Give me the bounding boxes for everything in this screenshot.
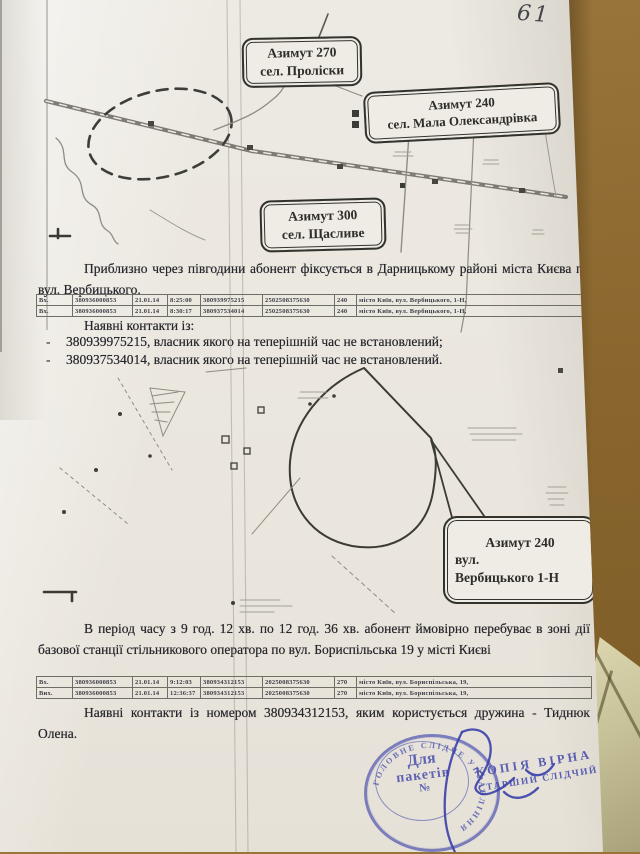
- cell: 270: [335, 677, 357, 688]
- contact-item: -380937534014, власник якого на теперішн…: [46, 352, 586, 368]
- cell: 380939975215: [201, 295, 263, 306]
- pointer-lines: [431, 440, 489, 523]
- cell: 380937534014: [201, 306, 263, 317]
- cell: 2502508375630: [263, 306, 335, 317]
- handwritten-page-number: 61: [516, 1, 552, 28]
- cell: 2502508375630: [263, 295, 335, 306]
- document-page: 61 Азимут 270 сел. Проліски Азимут 240 с…: [0, 0, 604, 852]
- photo-of-document: { "photo": { "page_number": "61" }, "map…: [0, 0, 640, 852]
- cell: 380936000853: [73, 688, 133, 699]
- callout-line: сел. Проліски: [244, 61, 360, 81]
- cell: 12:36:37: [168, 688, 201, 699]
- cell: 21.01.14: [133, 295, 168, 306]
- map-dots: [62, 394, 336, 605]
- contacts-intro: Наявні контакти із:: [84, 318, 194, 334]
- cell: 8:30:17: [168, 306, 201, 317]
- handwritten-signature: [358, 726, 598, 852]
- corner-bracket: [44, 592, 76, 601]
- page-edge-shadow: [0, 0, 2, 352]
- river-line: [56, 138, 118, 244]
- callout-line: сел. Щасливе: [262, 223, 384, 244]
- bullet-dash: -: [46, 352, 66, 368]
- coverage-ellipse: [79, 75, 241, 194]
- cell: 21.01.14: [133, 306, 168, 317]
- table-row: Вх. 380936000853 21.01.14 8:30:17 380937…: [37, 306, 592, 317]
- cell: 2025008375630: [263, 677, 335, 688]
- page-left-highlight: [0, 0, 46, 420]
- callout-line: Вербицького 1-Н: [455, 569, 585, 587]
- cell: 8:25:00: [168, 295, 201, 306]
- callout-azimuth-300: Азимут 300 сел. Щасливе: [259, 197, 386, 252]
- callout-azimuth-240-oleksandrivka: Азимут 240 сел. Мала Олександрівка: [363, 82, 561, 144]
- bullet-dash: -: [46, 334, 66, 350]
- cell: Вх.: [37, 677, 73, 688]
- cell: 240: [335, 295, 357, 306]
- cell: 270: [335, 688, 357, 699]
- call-log-table-boryspilska: Вх. 380936000853 21.01.14 9:12:03 380934…: [36, 676, 592, 699]
- call-log-table-verbytskoho: Вх. 380936000853 21.01.14 8:25:00 380939…: [36, 294, 592, 317]
- callout-line: вул.: [455, 551, 585, 569]
- cell: 380936000853: [73, 677, 133, 688]
- coverage-sector: [290, 368, 436, 547]
- building-squares: [222, 407, 264, 469]
- contact-text: 380939975215, власник якого на теперішні…: [66, 334, 443, 349]
- bench-mark: [50, 229, 70, 238]
- cell: 21.01.14: [133, 688, 168, 699]
- contact-text: 380937534014, власник якого на теперішні…: [66, 352, 442, 367]
- cell: 380936000853: [73, 295, 133, 306]
- table-row: Вих. 380936000853 21.01.14 12:36:37 3809…: [37, 688, 592, 699]
- paragraph-boryspilska: В період часу з 9 год. 12 хв. по 12 год.…: [38, 618, 590, 661]
- cell: Вх.: [37, 306, 73, 317]
- cell: Вих.: [37, 688, 73, 699]
- cell: 380934312153: [201, 677, 263, 688]
- table-row: Вх. 380936000853 21.01.14 8:25:00 380939…: [37, 295, 592, 306]
- table-row: Вх. 380936000853 21.01.14 9:12:03 380934…: [37, 677, 592, 688]
- callout-line: Азимут 240: [455, 534, 585, 552]
- cell: Вх.: [37, 295, 73, 306]
- cell: місто Київ, вул. Вербицького, 1-Н,: [357, 295, 592, 306]
- cell: місто Київ, вул. Бориспільська, 19,: [357, 688, 592, 699]
- cell: місто Київ, вул. Бориспільська, 19,: [357, 677, 592, 688]
- cell: 380936000853: [73, 306, 133, 317]
- callout-azimuth-240-verbytskoho: Азимут 240 вул. Вербицького 1-Н: [443, 516, 597, 604]
- contact-item: -380939975215, власник якого на теперішн…: [46, 334, 586, 350]
- hatched-area: [150, 388, 185, 436]
- cell: 21.01.14: [133, 677, 168, 688]
- cell: 2025008375630: [263, 688, 335, 699]
- stamp-and-signature: ГОЛОВНЕ СЛІДЧЕ УПРАВЛІННЯ Для пакетів № …: [358, 726, 598, 852]
- callout-line: Азимут 270: [244, 43, 360, 63]
- callout-azimuth-270: Азимут 270 сел. Проліски: [242, 36, 363, 88]
- cell: 9:12:03: [168, 677, 201, 688]
- cell: місто Київ, вул. Вербицького, 1-Н,: [357, 306, 592, 317]
- cell: 380934312153: [201, 688, 263, 699]
- cell: 240: [335, 306, 357, 317]
